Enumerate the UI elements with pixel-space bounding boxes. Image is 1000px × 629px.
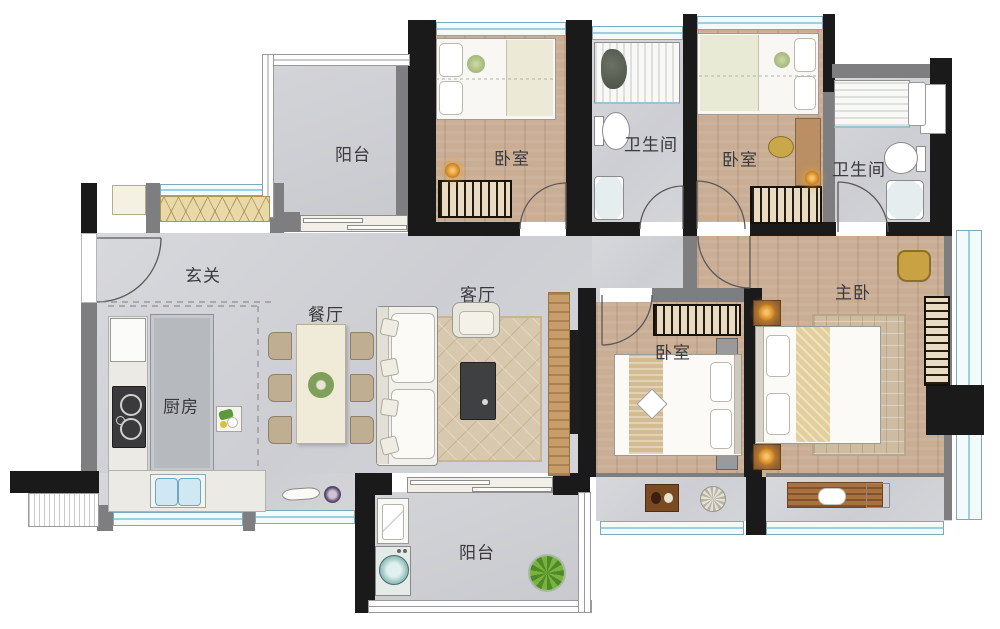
door-gap-bathroom-1: [640, 222, 683, 236]
pillow: [439, 81, 463, 115]
room-label-balcony-top: 阳台: [335, 141, 371, 166]
lamp-bedroom-1: [445, 163, 460, 178]
sliding-door-balcony-bottom: [407, 477, 553, 493]
room-label-bedroom-3: 卧室: [655, 339, 691, 364]
wall-main-seg-d: [823, 222, 836, 236]
burner: [120, 394, 142, 416]
pouf-bedroom3-bay: [700, 486, 726, 512]
sink-basin: [178, 478, 201, 506]
fridge: [110, 318, 146, 362]
throw-pillow: [379, 317, 399, 337]
bed-master: [755, 326, 881, 444]
sink-basin: [382, 504, 404, 540]
pillow: [794, 76, 816, 110]
toilet-bathroom-2: [884, 142, 918, 174]
headboard: [734, 355, 741, 454]
room-label-bathroom-1: 卫生间: [624, 131, 678, 156]
lamp-master-top: [758, 304, 775, 321]
room-label-bedroom-2: 卧室: [722, 146, 758, 171]
window-master-bay: [766, 521, 944, 535]
room-label-living: 客厅: [460, 281, 496, 306]
sink-bathroom-1: [594, 176, 624, 220]
dining-chair: [350, 374, 374, 402]
sliding-door-panel: [347, 225, 407, 230]
entry-niche: [112, 185, 146, 215]
window-living: [255, 510, 355, 524]
cabinet-bedroom3-bay: [645, 484, 679, 512]
laundry-sink: [377, 498, 409, 544]
sofa: [376, 306, 438, 466]
frame-balcony-top-left: [262, 54, 274, 218]
stove: [112, 386, 146, 448]
bed-runner: [796, 327, 830, 442]
sill-bedroom3-bay: [596, 473, 744, 477]
door-gap-bedroom2-master: [697, 222, 750, 236]
blanket: [506, 40, 553, 116]
wall-main-seg-b: [592, 222, 640, 236]
wall-balcony-top-post: [272, 212, 300, 232]
shower-bench-bathroom-2: [908, 82, 926, 126]
shower-bathroom-2: [834, 80, 910, 128]
pillow: [439, 43, 463, 77]
sliding-door-panel: [472, 487, 552, 492]
wall-entry-post: [81, 183, 97, 233]
wardrobe-master: [924, 296, 950, 386]
room-label-bathroom-2: 卫生间: [832, 156, 886, 181]
door-gap-bedroom-3: [600, 288, 652, 302]
dining-chair: [350, 332, 374, 360]
bed-bedroom-1: [436, 38, 556, 120]
lamp-bedroom-2: [805, 171, 819, 185]
wall-balcony-top-right: [396, 56, 408, 218]
wall-outer-left: [81, 303, 97, 473]
room-label-balcony-bottom: 阳台: [459, 539, 495, 564]
chair-bedroom-2: [768, 136, 794, 158]
room-label-dining: 餐厅: [308, 301, 344, 326]
dining-table: [296, 324, 346, 444]
chair-master: [897, 250, 931, 282]
wall-bathroom2-top: [832, 64, 930, 78]
washing-machine: [375, 546, 411, 596]
washer-knob: [397, 549, 401, 553]
wardrobe-bedroom-1: [438, 180, 512, 218]
wall-bay-divider: [746, 477, 766, 535]
sliding-door-balcony-top: [300, 215, 408, 232]
door-gap-entry: [81, 233, 97, 303]
coffee-table: [460, 362, 496, 420]
lamp-master-bottom: [758, 448, 775, 465]
window-entry: [160, 184, 270, 196]
wardrobe-bedroom-3: [653, 304, 741, 336]
wardrobe-bedroom-2: [750, 186, 822, 224]
kitchen-sink: [150, 474, 206, 508]
tv-screen: [570, 330, 580, 434]
window-bedroom-1: [436, 22, 566, 36]
frame-balcony-top-top: [262, 54, 410, 66]
pillow: [766, 393, 790, 435]
dining-chair: [268, 416, 292, 444]
pillow: [710, 409, 732, 449]
dining-chair: [268, 332, 292, 360]
room-label-entry: 玄关: [185, 262, 221, 287]
sink-basin: [155, 478, 178, 506]
shower-bathroom-1: [594, 42, 680, 104]
washer-knob: [403, 549, 407, 553]
table-decor: [482, 399, 488, 405]
washer-drum: [379, 555, 409, 585]
bottle-decor: [664, 493, 673, 503]
wall-main-seg-e: [886, 222, 952, 236]
dining-chair: [350, 416, 374, 444]
window-kitchen: [113, 512, 243, 526]
wall-bathroom1-bedroom2: [683, 14, 697, 236]
window-bedroom3-bay: [600, 521, 744, 535]
room-label-bedroom-1: 卧室: [494, 145, 530, 170]
headboard: [756, 327, 764, 442]
cutting-board-decor: [216, 406, 242, 432]
plant-decor: [530, 556, 564, 590]
bed-bedroom-2: [697, 33, 819, 115]
bed-plant-decor: [774, 52, 790, 68]
flower-decor: [324, 486, 341, 503]
sliding-door-panel: [410, 480, 490, 485]
dining-chair: [268, 374, 292, 402]
sink-bathroom-2: [886, 180, 924, 220]
floorplan-canvas: 阳台 卧室 卫生间 卧室 卫生间 玄关 餐厅 客厅 厨房 卧室 主卧 阳台: [0, 0, 1000, 629]
burner-small: [116, 416, 125, 425]
window-bedroom-2: [697, 16, 823, 30]
window-bay-kitchen-left: [28, 493, 99, 527]
wall-bedroom3-left: [578, 288, 596, 477]
room-label-master-bedroom: 主卧: [835, 279, 871, 304]
sill-master-bay: [766, 473, 944, 477]
pillow: [766, 335, 790, 377]
door-gap-bedroom-1: [520, 222, 566, 236]
blanket: [700, 35, 759, 111]
door-gap-bathroom-2: [836, 222, 886, 236]
window-bathroom-1: [592, 26, 683, 40]
wall-bedroom3-top: [652, 288, 744, 302]
throw-pillow: [380, 358, 400, 378]
bed-plant-decor: [467, 55, 485, 73]
tv-console: [548, 292, 570, 476]
throw-pillow: [380, 398, 399, 417]
room-label-kitchen: 厨房: [163, 393, 199, 418]
pillow: [794, 38, 816, 72]
shoe-cabinet: [160, 196, 270, 222]
vegetable-decor: [220, 421, 227, 428]
wall-main-seg-c: [750, 222, 823, 236]
wall-bedroom1-bathroom1: [566, 20, 592, 236]
pillow: [710, 362, 732, 402]
frame-balcony-bottom-right: [578, 492, 591, 613]
table-centerpiece: [308, 372, 334, 398]
bottle-decor: [651, 492, 661, 504]
wall-master-right-post: [926, 385, 984, 435]
wall-corridor-master: [683, 236, 697, 302]
vegetable-decor: [227, 417, 238, 428]
bed-bedroom-3: [614, 354, 742, 456]
wall-kitchen-corner: [10, 471, 99, 493]
wall-main-seg-a: [436, 222, 520, 236]
decor-box-master-bay: [866, 483, 890, 508]
armchair-seat: [459, 311, 494, 335]
tray-decor: [818, 488, 846, 505]
shower-stone-decor: [601, 49, 627, 89]
window-master-right: [956, 230, 982, 520]
armchair: [452, 302, 500, 338]
sliding-door-panel: [303, 218, 363, 223]
frame-balcony-bottom-bottom: [368, 600, 592, 613]
wall-balcony-bottom-left: [355, 473, 375, 613]
wall-bedroom1-left: [408, 20, 436, 236]
wall-entry-cabinet-post-left: [146, 183, 160, 233]
